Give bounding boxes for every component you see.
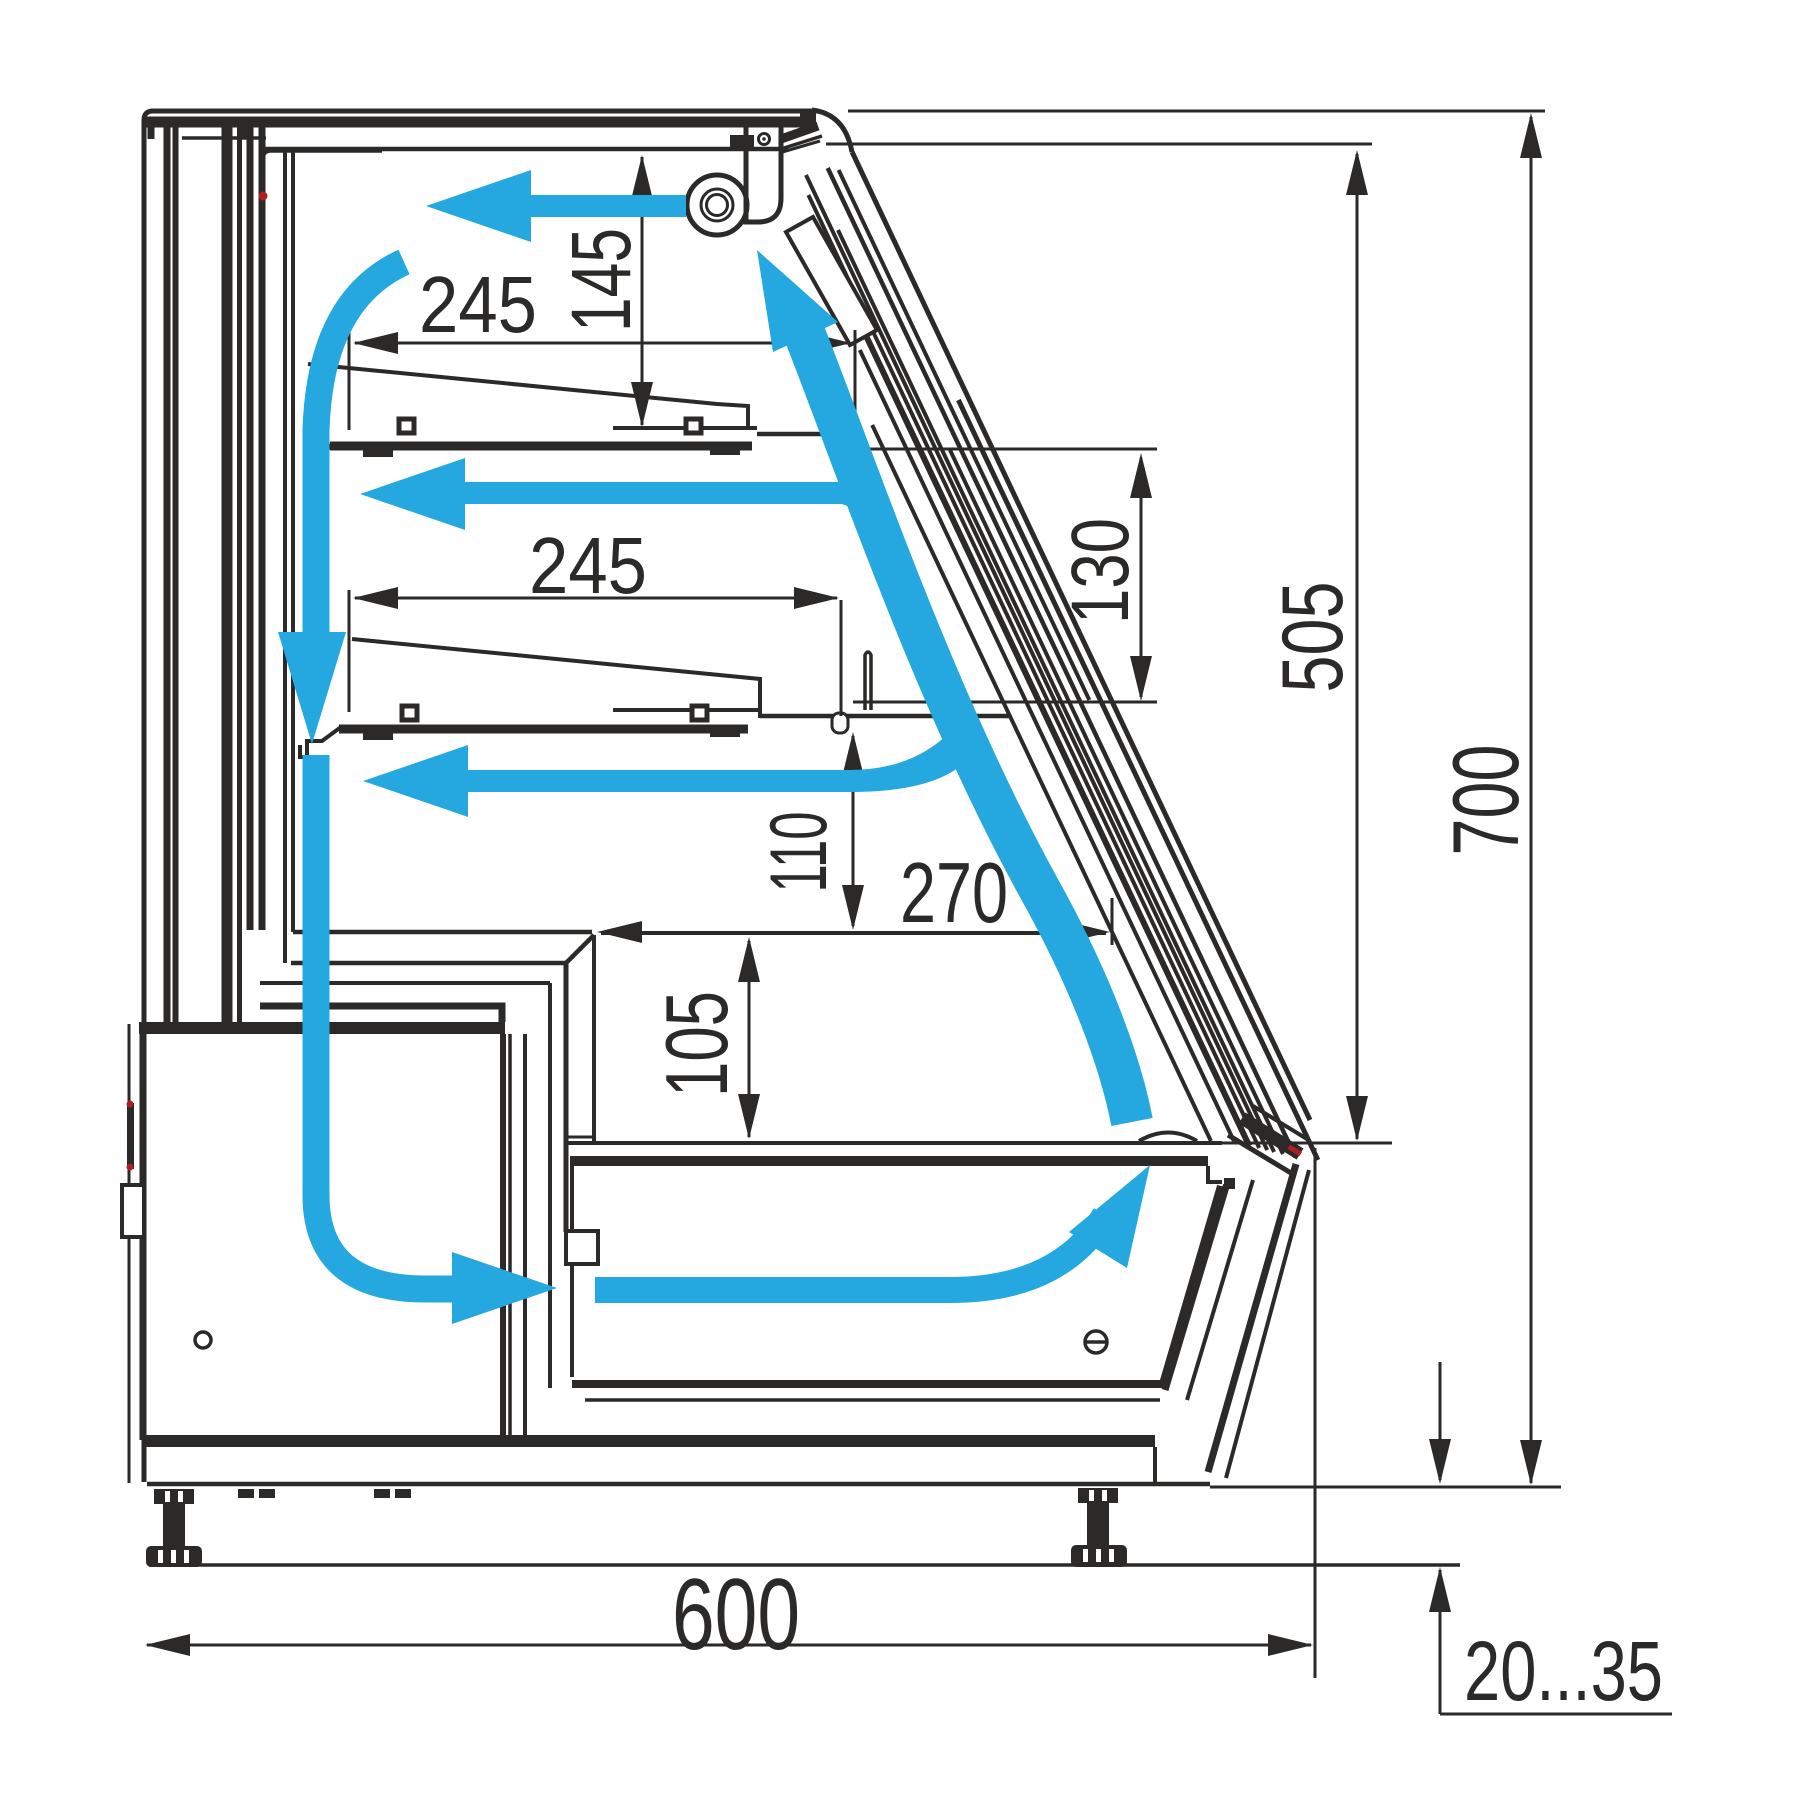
svg-text:110: 110 bbox=[754, 812, 844, 893]
svg-text:700: 700 bbox=[1433, 745, 1538, 856]
svg-text:130: 130 bbox=[1055, 518, 1146, 624]
svg-text:505: 505 bbox=[1265, 582, 1361, 693]
svg-text:245: 245 bbox=[419, 260, 537, 349]
svg-text:20...35: 20...35 bbox=[1464, 1624, 1663, 1718]
svg-text:270: 270 bbox=[900, 846, 1008, 941]
svg-text:600: 600 bbox=[672, 1559, 800, 1671]
svg-text:245: 245 bbox=[529, 521, 647, 610]
svg-text:145: 145 bbox=[554, 228, 648, 332]
svg-text:105: 105 bbox=[647, 991, 746, 1097]
